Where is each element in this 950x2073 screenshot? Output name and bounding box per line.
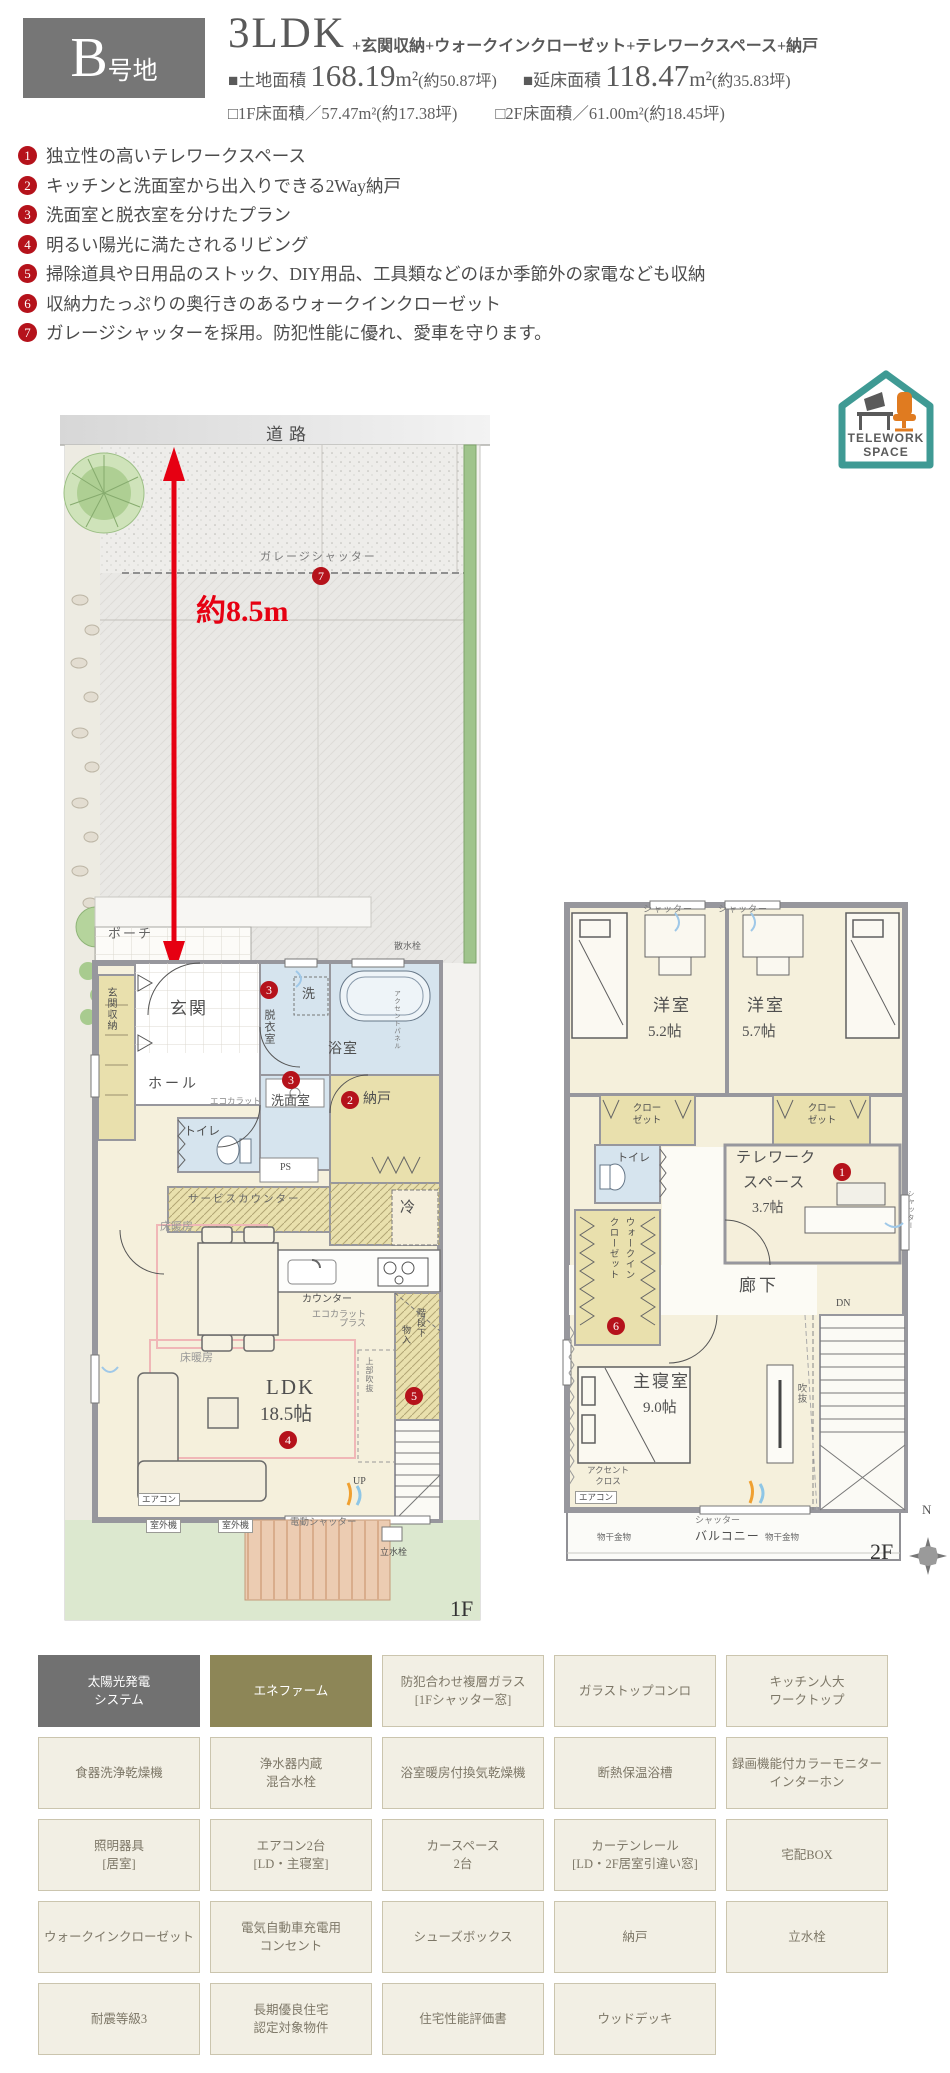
floor-area-summary: □1F床面積／57.47m²(約17.38坪) □2F床面積／61.00m²(約… xyxy=(228,100,725,124)
washroom-label: 洗面室 xyxy=(271,1094,310,1107)
accent-cloth-label: アクセント クロス xyxy=(577,1465,639,1486)
void-upper-label: 上部吹抜 xyxy=(365,1357,373,1393)
sprinkler-label: 散水栓 xyxy=(394,942,421,951)
north-label: N xyxy=(922,1503,931,1516)
room-b-label: 洋室 xyxy=(747,997,785,1014)
bed-room-b xyxy=(846,913,899,1038)
up-label: UP xyxy=(353,1477,366,1487)
amenity-cell-water-purifier: 浄水器内蔵混合水栓 xyxy=(210,1737,372,1809)
land-area-label: ■土地面積 xyxy=(228,66,306,91)
bed-room-a xyxy=(572,913,627,1038)
amenity-cell-dishwasher: 食器洗浄乾燥機 xyxy=(38,1737,200,1809)
floor-2f-label: 2F xyxy=(870,1541,893,1563)
fridge-space xyxy=(392,1190,438,1245)
amenity-cell-storage: 納戸 xyxy=(554,1901,716,1973)
bathtub xyxy=(340,971,430,1021)
ecocarat-plus-label: エコカラット プラス xyxy=(310,1310,366,1328)
telework-desk xyxy=(805,1207,895,1233)
closet-right-label: クロー ゼット xyxy=(800,1104,844,1128)
telework-size-label: 3.7帖 xyxy=(752,1202,784,1216)
amenity-cell-lighting: 照明器具[居室] xyxy=(38,1819,200,1891)
tv-board xyxy=(767,1365,793,1463)
floorplan-1f: 道路 ガレージシャッター 7 約8.5m ポーチ 散水栓 玄関収納 玄関 3 洗… xyxy=(60,415,490,1650)
lot-suffix: 号地 xyxy=(108,29,158,87)
feature-number-badge: 7 xyxy=(18,323,37,342)
badge-5: 5 xyxy=(405,1387,423,1405)
void-label: 吹抜 xyxy=(795,1383,805,1404)
logo-text-line2: SPACE xyxy=(836,445,936,459)
amenity-cell-ev-outlet: 電気自動車充電用コンセント xyxy=(210,1901,372,1973)
feature-item: 5掃除道具や日用品のストック、DIY用品、工具類などのほか季節外の家電なども収納 xyxy=(18,264,706,283)
badge-1: 1 xyxy=(833,1163,851,1181)
floor2-area: □2F床面積／61.00m²(約18.45坪) xyxy=(495,100,724,124)
amenity-cell-glass-top-stove: ガラストップコンロ xyxy=(554,1655,716,1727)
plan-type-title: 3LDK xyxy=(228,12,346,55)
feature-number-badge: 4 xyxy=(18,235,37,254)
floor1-area: □1F床面積／57.47m²(約17.38坪) xyxy=(228,100,457,124)
gross-area-unit: m² xyxy=(689,67,712,92)
tree-large xyxy=(64,453,144,533)
shutter-label-a: シャッター xyxy=(643,905,693,914)
floor-heating-label-1: 床暖房 xyxy=(160,1222,193,1233)
feature-number-badge: 5 xyxy=(18,264,37,283)
dimension-label: 約8.5m xyxy=(196,597,289,627)
entrance-storage-label: 玄関収納 xyxy=(105,987,115,1031)
drying-fixture-left: 物干金物 xyxy=(597,1533,631,1542)
badge-6: 6 xyxy=(607,1317,625,1335)
feature-item: 6収納力たっぷりの奥行きのあるウォークインクローゼット xyxy=(18,294,706,313)
toilet-2f-label: トイレ xyxy=(617,1153,650,1164)
washer-label: 洗 xyxy=(302,987,315,1000)
room-a-label: 洋室 xyxy=(653,997,691,1014)
area-summary: ■土地面積 168.19 m² (約50.87坪) ■延床面積 118.47 m… xyxy=(228,58,791,94)
amenity-cell-car-space: カースペース2台 xyxy=(382,1819,544,1891)
floor-heating-label-2: 床暖房 xyxy=(180,1353,213,1364)
room-b-size: 5.7帖 xyxy=(742,1025,776,1040)
tap-label: 立水栓 xyxy=(380,1548,407,1557)
dn-label: DN xyxy=(836,1299,850,1309)
feature-item: 1独立性の高いテレワークスペース xyxy=(18,146,706,165)
feature-item: 2キッチンと洗面室から出入りできる2Way納戸 xyxy=(18,176,706,195)
compass-icon xyxy=(909,1537,947,1575)
land-area-value: 168.19 xyxy=(310,58,395,94)
feature-number-badge: 2 xyxy=(18,176,37,195)
garage-shutter-label: ガレージシャッター xyxy=(260,552,377,563)
shutter-label-bottom: シャッター xyxy=(695,1516,740,1525)
bath-label: 浴室 xyxy=(328,1043,358,1057)
badge-3b: 3 xyxy=(282,1071,300,1089)
feature-number-badge: 1 xyxy=(18,146,37,165)
outdoor-unit-label-1: 室外機 xyxy=(146,1519,181,1533)
feature-text: 洗面室と脱衣室を分けたプラン xyxy=(46,202,291,227)
gross-area-value: 118.47 xyxy=(605,58,689,94)
amenity-cell-curtain-rail: カーテンレール[LD・2F居室引違い窓] xyxy=(554,1819,716,1891)
wic-label-1: ウォークイン xyxy=(623,1217,633,1280)
amenity-cell-bath-dryer: 浴室暖房付換気乾燥機 xyxy=(382,1737,544,1809)
hedge xyxy=(464,445,476,963)
counter-label: カウンター xyxy=(302,1295,352,1305)
amenity-cell-delivery-box: 宅配BOX xyxy=(726,1819,888,1891)
aircon-2f-label: エアコン xyxy=(575,1491,617,1504)
ecocarat-label: エコカラット xyxy=(210,1097,261,1106)
telework-label-2: スペース xyxy=(743,1176,805,1191)
floor-1f-label: 1F xyxy=(450,1598,473,1620)
amenity-cell-intercom: 録画機能付カラーモニターインターホン xyxy=(726,1737,888,1809)
storage-1f-label: 納戸 xyxy=(363,1093,391,1107)
feature-item: 3洗面室と脱衣室を分けたプラン xyxy=(18,205,706,224)
land-area-tsubo: (約50.87坪) xyxy=(418,67,497,91)
feature-item: 4明るい陽光に満たされるリビング xyxy=(18,235,706,254)
amenity-cell-long-term-housing: 長期優良住宅認定対象物件 xyxy=(210,1983,372,2055)
feature-number-badge: 6 xyxy=(18,294,37,313)
feature-text: 明るい陽光に満たされるリビング xyxy=(46,232,309,257)
lot-badge: B 号地 xyxy=(23,18,205,98)
amenity-cell-kitchen-worktop: キッチン人大ワークトップ xyxy=(726,1655,888,1727)
master-size-label: 9.0帖 xyxy=(643,1401,677,1416)
ps-label: PS xyxy=(280,1163,291,1173)
ldk-size-label: 18.5帖 xyxy=(260,1405,312,1424)
amenity-cell-insulated-tub: 断熱保温浴槽 xyxy=(554,1737,716,1809)
dining-table xyxy=(198,1227,278,1351)
amenity-cell-security-glass: 防犯合わせ複層ガラス[1Fシャッター窓] xyxy=(382,1655,544,1727)
amenity-cell-tap: 立水栓 xyxy=(726,1901,888,1973)
shutter-label-right: シャッター xyxy=(907,1190,914,1230)
accent-panel-label: アクセントパネル xyxy=(392,990,399,1050)
badge-7: 7 xyxy=(312,567,330,585)
telework-space-logo: TELEWORK SPACE xyxy=(836,368,936,472)
amenity-cell-seismic: 耐震等級3 xyxy=(38,1983,200,2055)
closet-left-label: クロー ゼット xyxy=(625,1104,669,1128)
logo-text-line1: TELEWORK xyxy=(836,431,936,445)
feature-text: 掃除道具や日用品のストック、DIY用品、工具類などのほか季節外の家電なども収納 xyxy=(46,261,706,286)
amenity-cell-shoe-box: シューズボックス xyxy=(382,1901,544,1973)
entrance-label: 玄関 xyxy=(170,1000,208,1017)
lot-letter: B xyxy=(70,30,107,86)
balcony-label: バルコニー xyxy=(695,1530,760,1542)
entrance-storage-room xyxy=(98,975,135,1140)
gross-area-tsubo: (約35.83坪) xyxy=(712,67,791,91)
feature-text: ガレージシャッターを採用。防犯性能に優れ、愛車を守ります。 xyxy=(46,320,552,345)
room-a-size: 5.2帖 xyxy=(648,1025,682,1040)
amenity-cell-wood-deck: ウッドデッキ xyxy=(554,1983,716,2055)
land-area-unit: m² xyxy=(396,67,419,92)
fridge-label: 冷 xyxy=(400,1201,415,1216)
approach-step xyxy=(95,897,371,927)
feature-text: キッチンと洗面室から出入りできる2Way納戸 xyxy=(46,173,401,198)
feature-list: 1独立性の高いテレワークスペース 2キッチンと洗面室から出入りできる2Way納戸… xyxy=(18,146,706,353)
kitchen-sink xyxy=(288,1260,336,1284)
aircon-1f-label: エアコン xyxy=(138,1493,180,1506)
feature-number-badge: 3 xyxy=(18,205,37,224)
wic-label-2: クローゼット xyxy=(607,1217,617,1280)
electric-shutter-label: 電動シャッター xyxy=(290,1519,357,1529)
amenity-cell-aircon: エアコン2台[LD・主寝室] xyxy=(210,1819,372,1891)
flyer-page: B 号地 3LDK +玄関収納+ウォークインクローゼット+テレワークスペース+納… xyxy=(0,0,950,2073)
amenity-cell-wic: ウォークインクローゼット xyxy=(38,1901,200,1973)
shutter-label-b: シャッター xyxy=(718,905,768,914)
road-label: 道路 xyxy=(266,426,312,443)
stairs-1f xyxy=(395,1420,440,1520)
badge-2: 2 xyxy=(341,1091,359,1109)
toilet-1f-label: トイレ xyxy=(184,1125,220,1137)
amenity-grid: 太陽光発電システム エネファーム 防犯合わせ複層ガラス[1Fシャッター窓] ガラ… xyxy=(38,1655,888,2055)
badge-3a: 3 xyxy=(260,981,278,999)
hall-label: ホール xyxy=(148,1078,199,1092)
corridor-label: 廊下 xyxy=(739,1277,779,1294)
outdoor-unit-label-2: 室外機 xyxy=(218,1519,253,1533)
plan-extras: +玄関収納+ウォークインクローゼット+テレワークスペース+納戸 xyxy=(352,32,818,56)
ldk-label: LDK xyxy=(266,1377,315,1398)
floorplan-2f: シャッター シャッター 洋室 5.2帖 洋室 5.7帖 クロー ゼット クロー … xyxy=(555,885,950,1655)
porch-label: ポーチ xyxy=(108,927,153,940)
drying-fixture-right: 物干金物 xyxy=(765,1533,799,1542)
feature-text: 独立性の高いテレワークスペース xyxy=(46,143,306,168)
feature-text: 収納力たっぷりの奥行きのあるウォークインクローゼット xyxy=(46,291,501,316)
master-label: 主寝室 xyxy=(633,1373,690,1390)
feature-item: 7ガレージシャッターを採用。防犯性能に優れ、愛車を守ります。 xyxy=(18,323,706,342)
service-counter-label: サービスカウンター xyxy=(188,1195,301,1206)
under-stair-label-2: 物入 xyxy=(401,1325,410,1345)
badge-4: 4 xyxy=(279,1431,297,1449)
dressing-room-label: 脱衣室 xyxy=(263,1009,274,1045)
stairs-2f xyxy=(820,1315,905,1510)
gross-area-label: ■延床面積 xyxy=(523,66,601,91)
amenity-cell-performance-report: 住宅性能評価書 xyxy=(382,1983,544,2055)
tap-box xyxy=(382,1527,402,1541)
under-stair-label-1: 階段下 xyxy=(416,1308,425,1338)
telework-label-1: テレワーク xyxy=(736,1151,816,1166)
amenity-cell-enefarm: エネファーム xyxy=(210,1655,372,1727)
amenity-cell-solar: 太陽光発電システム xyxy=(38,1655,200,1727)
